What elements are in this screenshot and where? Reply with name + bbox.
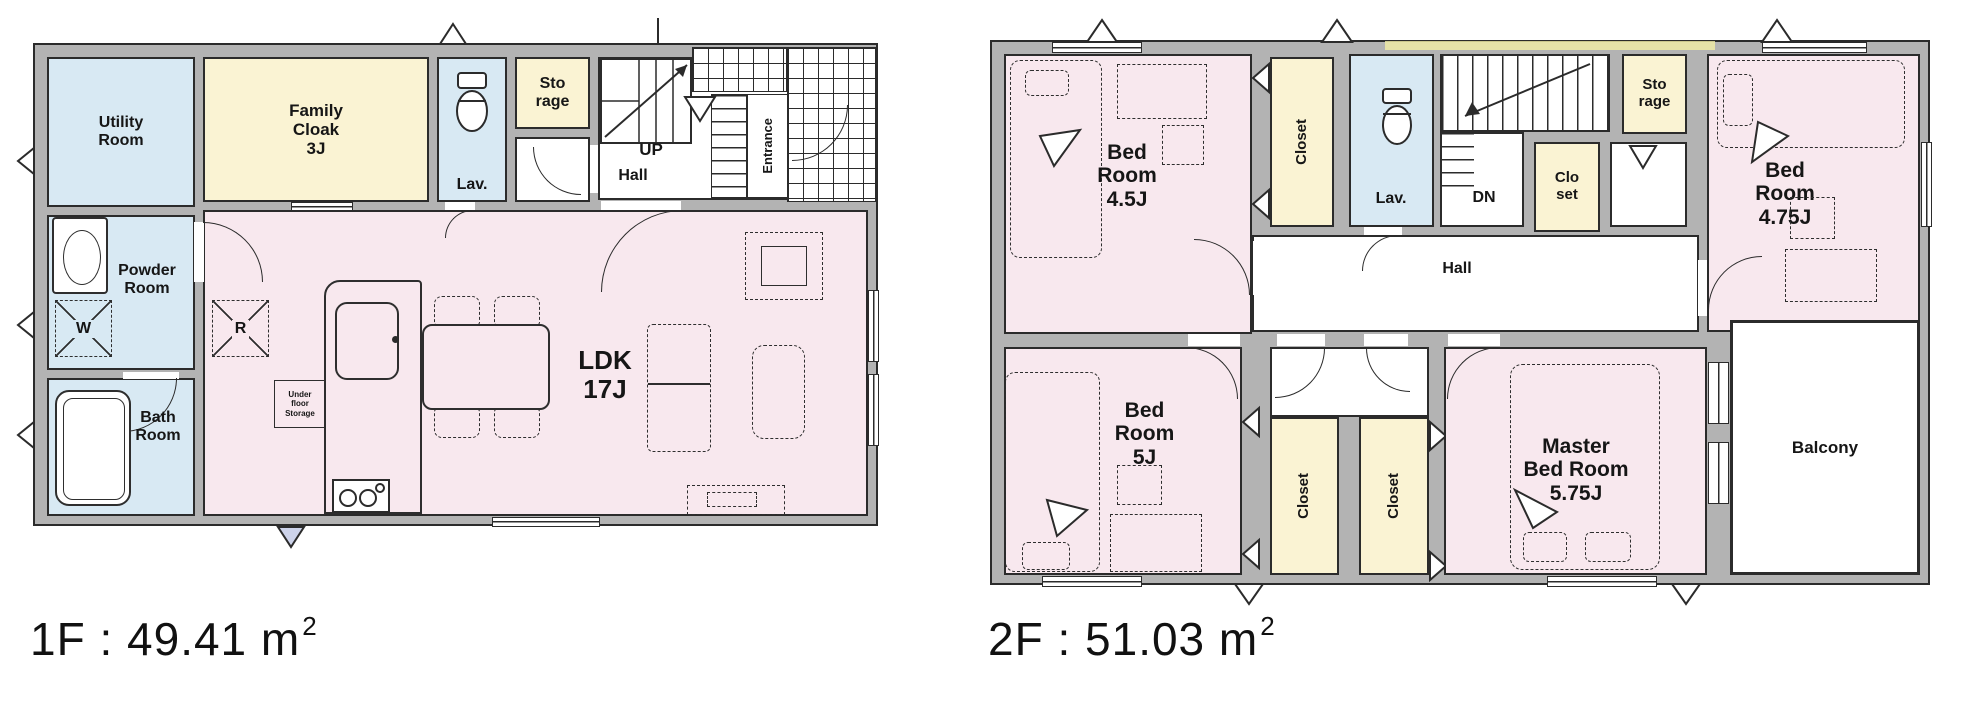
door-opening-vestibule <box>1277 334 1325 346</box>
label-family-cloak: Family Cloak 3J <box>289 101 343 158</box>
label-closet-s2: Closet <box>1386 473 1403 519</box>
sink-bowl <box>63 230 101 285</box>
stove-icon <box>332 479 390 513</box>
label-hall-2f: Hall <box>1422 257 1492 281</box>
door-swing-icon <box>1672 584 1700 604</box>
stairs-up-icon <box>601 59 691 143</box>
window <box>492 517 600 527</box>
room-family-cloak: Family Cloak 3J <box>203 57 429 202</box>
room-utility: Utility Room <box>47 57 195 207</box>
stair-treads <box>1442 133 1474 189</box>
label-hall-1f: Hall <box>591 165 675 187</box>
room-entrance: Entrance <box>747 94 789 198</box>
stairs-down-icon <box>1440 54 1610 132</box>
window <box>868 374 879 446</box>
kitchen-sink <box>335 302 399 380</box>
window <box>1547 576 1657 587</box>
label-storage-1f: Sto rage <box>536 75 570 111</box>
floor2-area-sup: 2 <box>1260 611 1275 641</box>
label-balcony: Balcony <box>1792 438 1858 457</box>
label-closet-s1: Closet <box>1296 473 1313 519</box>
entrance-steps <box>711 94 747 198</box>
door-opening-storage-closet <box>590 145 598 193</box>
door-swing-icon <box>278 527 304 547</box>
room-closet-s2: Closet <box>1359 417 1429 575</box>
label-entrance: Entrance <box>761 118 776 174</box>
bathtub-inner <box>63 398 125 500</box>
room-closet-north: Closet <box>1270 57 1334 227</box>
desk <box>1110 514 1202 572</box>
room-storage-2f: Sto rage <box>1622 54 1687 134</box>
room-hall-2f <box>1252 235 1699 332</box>
vent-triangle-icon <box>1762 20 1792 42</box>
washer-box: W <box>55 300 112 357</box>
door-opening-lav-2f <box>1364 227 1402 235</box>
label-lav-2f: Lav. <box>1359 187 1423 211</box>
label-fridge: R <box>232 320 250 338</box>
floor1-plan: Utility Room Family Cloak 3J Sto rage UP… <box>33 43 878 526</box>
label-master: Master Bed Room 5.75J <box>1490 427 1662 513</box>
desk-chair <box>1790 197 1835 239</box>
label-up: UP <box>623 139 679 161</box>
bifold-door-icon <box>1243 408 1259 436</box>
door-opening-vestibule <box>1364 334 1408 346</box>
window <box>1052 42 1142 53</box>
room-balcony: Balcony <box>1730 320 1920 575</box>
tv <box>707 492 757 507</box>
floorplan-canvas: Utility Room Family Cloak 3J Sto rage UP… <box>0 0 1961 703</box>
dining-chair <box>494 408 540 438</box>
vent-triangle-icon <box>18 312 34 338</box>
porch-tiles-top <box>692 47 787 92</box>
pillow <box>1025 70 1069 96</box>
bifold-door-icon <box>1243 540 1259 568</box>
sofa-divider <box>648 383 710 385</box>
label-underfloor-storage: Under floor Storage <box>285 390 315 419</box>
ottoman <box>752 345 805 439</box>
label-closet-north: Closet <box>1294 119 1311 165</box>
door-opening-lav-1f <box>445 202 475 210</box>
window <box>1708 362 1729 424</box>
vent-triangle-icon <box>18 422 34 448</box>
label-lav-1f: Lav. <box>437 172 507 198</box>
vent-triangle-icon <box>440 24 466 44</box>
room-closet-mid: Clo set <box>1534 142 1600 232</box>
pillow <box>1723 74 1753 126</box>
dining-table <box>422 324 550 410</box>
door-swing-icon <box>1630 146 1656 168</box>
label-washer: W <box>73 320 94 338</box>
floor1-area-label: 1F : 49.41 m2 <box>30 612 318 666</box>
vanity-sink <box>52 217 108 294</box>
toilet-icon-1f <box>450 71 494 135</box>
door-swing-icon <box>685 97 715 121</box>
door-swing-icon <box>1235 584 1263 604</box>
floor2-area-label: 2F : 51.03 m2 <box>988 612 1276 666</box>
floor2-area-text: 2F : 51.03 m <box>988 613 1258 665</box>
label-bed-5: Bed Room 5J <box>1087 394 1202 474</box>
fridge-box: R <box>212 300 269 357</box>
wall-tick <box>657 18 659 44</box>
pillow <box>1523 532 1567 562</box>
label-utility-room: Utility Room <box>98 114 143 150</box>
door-opening-hall-ldk <box>601 201 681 210</box>
window <box>1762 42 1867 53</box>
vent-triangle-icon <box>18 148 34 174</box>
label-bath-room: Bath Room <box>123 405 193 449</box>
label-dn: DN <box>1462 187 1506 209</box>
kitchen-faucet <box>392 336 399 343</box>
floor1-area-sup: 2 <box>302 611 317 641</box>
side-table-inner <box>761 246 807 286</box>
sofa <box>647 324 711 452</box>
wall-highlight <box>1385 41 1715 50</box>
chair-icon <box>1047 500 1087 536</box>
dining-chair <box>434 408 480 438</box>
bifold-door-icon <box>1253 190 1269 218</box>
floor2-plan: Closet DN Clo set Sto rage Hall Bed Room… <box>990 40 1930 585</box>
label-bed-45: Bed Room 4.5J <box>1067 137 1187 215</box>
sliding-door-family-cloak <box>291 202 353 211</box>
bifold-door-icon <box>1253 64 1269 92</box>
door-opening-master <box>1448 334 1500 346</box>
window <box>1042 576 1142 587</box>
label-closet-mid: Clo set <box>1555 170 1579 204</box>
desk <box>1785 249 1877 302</box>
desk <box>1117 64 1207 119</box>
door-opening-bed-45 <box>1253 241 1269 295</box>
dining-chair <box>494 296 540 326</box>
door-opening-bed-475 <box>1698 260 1707 316</box>
room-closet-s1: Closet <box>1270 417 1339 575</box>
floor1-area-text: 1F : 49.41 m <box>30 613 300 665</box>
bathtub <box>55 390 131 506</box>
door-opening-bed-5 <box>1188 334 1240 346</box>
window <box>1708 442 1729 504</box>
vent-triangle-icon <box>1322 20 1352 42</box>
room-storage-1f: Sto rage <box>515 57 590 129</box>
window <box>868 290 879 362</box>
window <box>1921 142 1932 227</box>
toilet-icon-2f <box>1377 87 1417 147</box>
label-storage-2f: Sto rage <box>1639 77 1671 111</box>
vent-triangle-icon <box>1087 20 1117 42</box>
label-powder-room: Powder Room <box>107 258 187 302</box>
dining-chair <box>434 296 480 326</box>
pillow <box>1022 542 1070 570</box>
pillow <box>1585 532 1631 562</box>
underfloor-storage-box: Under floor Storage <box>274 380 326 428</box>
